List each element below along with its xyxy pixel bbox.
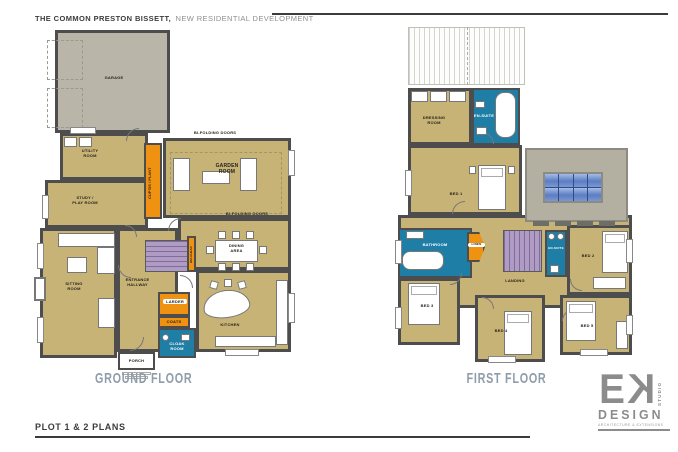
sofa-icon (173, 158, 190, 191)
label-sitting: SITTING ROOM (54, 281, 94, 291)
label-bulkhead: BULKHEAD (189, 241, 193, 269)
window (225, 349, 259, 356)
bed-icon (602, 231, 628, 273)
label-ensuite-2: EN-SUITE (545, 247, 567, 251)
window (42, 195, 49, 219)
logo-studio-text: STUDIO (657, 372, 662, 406)
door-arc (180, 275, 193, 288)
door-arc (168, 218, 181, 231)
dryer-icon (79, 137, 92, 147)
bedside-table-icon (469, 166, 476, 174)
label-bed1: BED 1 (438, 191, 474, 196)
window (580, 349, 608, 356)
armchair-icon (98, 298, 115, 328)
roof-vent (555, 221, 571, 226)
label-larder: LARDER (163, 299, 187, 304)
bed-icon (504, 311, 532, 355)
basin-icon (162, 334, 169, 341)
window (37, 243, 44, 269)
washer-icon (64, 137, 77, 147)
garage-door-swing (47, 40, 83, 80)
label-dressing: DRESSING ROOM (412, 115, 456, 125)
chair-icon (246, 263, 254, 271)
label-garage: GARAGE (92, 75, 136, 80)
wardrobe-icon (593, 277, 626, 289)
drawing-sheet: { "header": { "project": "THE COMMON PRE… (0, 0, 678, 452)
label-hallway: ENTRANCE HALLWAY (115, 277, 160, 287)
ek-design-logo: E K STUDIO DESIGN ARCHITECTURE & EXTENSI… (598, 372, 670, 431)
window (395, 307, 402, 329)
staircase (503, 230, 542, 272)
sheet-title: PLOT 1 & 2 PLANS (35, 422, 126, 432)
ground-floor-plan: GARAGE (30, 25, 305, 397)
wardrobe-icon (411, 91, 428, 102)
chair-icon (232, 263, 240, 271)
logo-letter-e: E (599, 372, 625, 406)
bed-icon (478, 165, 506, 210)
sofa-icon (58, 233, 115, 247)
garage-door-swing (47, 88, 83, 128)
sheet-header: THE COMMON PRESTON BISSETT, NEW RESIDENT… (35, 8, 314, 26)
chair-icon (232, 231, 240, 239)
bathtub-icon (402, 251, 444, 270)
fireplace-icon (34, 277, 46, 301)
wardrobe-icon (430, 91, 447, 102)
label-study: STUDY / PLAY ROOM (60, 195, 110, 205)
ground-floor-title: GROUND FLOOR (64, 370, 224, 387)
chair-icon (218, 231, 226, 239)
label-linen: LINEN (468, 243, 485, 247)
label-bed4: BED 4 (486, 328, 516, 333)
kitchen-counter (276, 280, 288, 345)
bedside-table-icon (508, 166, 515, 174)
label-garden: GARDEN ROOM (192, 163, 262, 176)
basin-icon (406, 231, 424, 239)
logo-design-text: DESIGN (598, 407, 666, 422)
label-bifold-top: BI-FOLDING DOORS (180, 130, 250, 135)
wardrobe-icon (449, 91, 466, 102)
toilet-icon (476, 127, 487, 135)
chair-icon (259, 246, 267, 254)
roof-ridge (467, 27, 468, 85)
label-dining: DINING AREA (213, 243, 260, 253)
toilet-icon (181, 334, 190, 341)
label-bathroom: BATHROOM (408, 242, 462, 247)
bathtub-icon (495, 92, 516, 138)
label-bed2: BED 2 (574, 253, 602, 258)
basin-icon (475, 101, 485, 108)
kitchen-counter (215, 336, 276, 347)
label-kitchen: KITCHEN (208, 322, 252, 327)
chair-icon (246, 231, 254, 239)
label-bed5: BED 5 (572, 323, 602, 328)
window (288, 150, 295, 176)
window (488, 356, 516, 363)
logo-tagline: ARCHITECTURE & EXTENSIONS (598, 423, 670, 431)
staircase (145, 240, 188, 272)
room-larder (158, 292, 190, 316)
sofa-icon (97, 247, 115, 274)
label-bifold-bottom: BI-FOLDING DOORS (212, 211, 282, 216)
label-landing: LANDING (494, 278, 536, 283)
toilet-icon (550, 265, 559, 273)
header-rule (272, 13, 668, 15)
project-subtitle: NEW RESIDENTIAL DEVELOPMENT (176, 14, 314, 23)
label-ensuite-1: EN-SUITE (472, 113, 496, 118)
roof-vent (599, 221, 615, 226)
label-utility: UTILITY ROOM (68, 148, 112, 158)
window (405, 170, 412, 196)
coffee-table-icon (67, 257, 87, 273)
window (626, 315, 633, 335)
footer-rule (35, 436, 530, 438)
window (395, 240, 402, 264)
chair-icon (218, 263, 226, 271)
first-floor-plan: DRESSING ROOM EN-SUITE BED 1 BATHROOM LI… (390, 25, 642, 397)
label-cupboards: CUP'DS / PLANT (147, 161, 152, 205)
window (626, 239, 633, 263)
basin-icon (557, 233, 564, 240)
window (288, 293, 295, 323)
logo-letter-k-mirrored: K (627, 372, 655, 406)
project-title: THE COMMON PRESTON BISSETT, (35, 14, 171, 23)
basin-icon (548, 233, 555, 240)
window (70, 127, 96, 134)
roof-vent (533, 221, 549, 226)
bed-icon (566, 301, 596, 341)
logo-letters: E K STUDIO (598, 372, 670, 406)
roof-lantern (543, 172, 603, 203)
roof-vent (577, 221, 593, 226)
first-floor-title: FIRST FLOOR (426, 370, 586, 387)
window (37, 317, 44, 343)
label-porch: PORCH (118, 358, 155, 363)
stool-icon (224, 279, 232, 287)
label-coats: COATS (161, 319, 187, 324)
label-cloak: CLOAK ROOM (160, 341, 194, 351)
label-bed3: BED 3 (412, 303, 442, 308)
